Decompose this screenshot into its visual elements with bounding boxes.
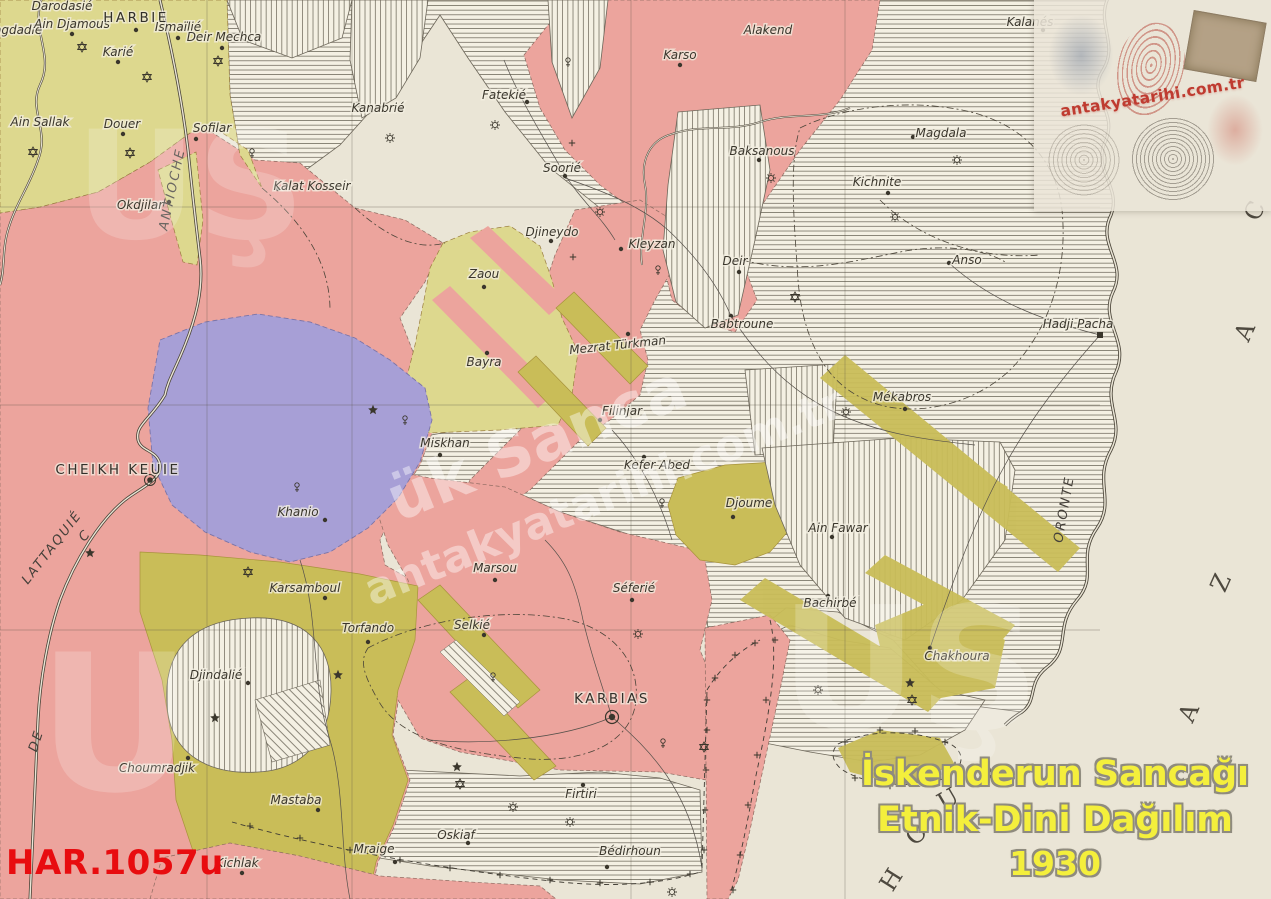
place-label: Kanabrié	[351, 101, 404, 115]
catalog-code: HAR.1057u	[6, 843, 224, 883]
place-label: KARBIAS	[574, 691, 650, 707]
place-label: Magdala	[916, 126, 967, 140]
place-label: Darodasié	[32, 0, 93, 13]
place-label: Bédirhoun	[599, 844, 661, 858]
place-label: Djineydo	[526, 225, 579, 239]
place-label: Babtroune	[711, 317, 774, 331]
place-label: Kleyzan	[629, 237, 676, 251]
map-scan: Darodasié Bagdadié Ain Djamous HARBIE Is…	[0, 0, 1271, 899]
place-label: Firtiri	[565, 787, 597, 801]
place-label: Anso	[951, 253, 981, 267]
handprint-icon	[1048, 14, 1114, 96]
place-label: Fatekié	[482, 88, 526, 102]
watermark-letters: UŞ	[780, 571, 1040, 769]
place-label: Hadji Pacha	[1043, 317, 1114, 331]
footprint-icon	[1036, 111, 1131, 208]
map-title: İskenderun Sancağı Etnik-Dini Dağılım 19…	[840, 752, 1270, 886]
place-label: Karsamboul	[270, 581, 342, 595]
place-label: Ain Djamous	[33, 17, 110, 31]
place-label: Mastaba	[271, 793, 322, 807]
map-title-line1: İskenderun Sancağı	[840, 752, 1270, 798]
place-label: Selkié	[454, 618, 490, 632]
place-label: Zaou	[468, 267, 500, 281]
place-label: Alakend	[743, 23, 793, 37]
place-label: Deir	[723, 254, 749, 268]
place-label: Djoume	[726, 496, 773, 510]
map-title-year: 1930	[840, 843, 1270, 886]
place-label: Séferié	[613, 581, 655, 595]
place-label: Bayra	[467, 355, 502, 369]
place-label: CHEIKH KEUIE	[55, 462, 180, 478]
site-logo-watermark: antakyatarihi.com.tr	[1034, 0, 1271, 211]
place-label: Soorié	[543, 161, 581, 175]
place-label: Mraige	[354, 842, 395, 856]
place-label: Deir Mechca	[187, 30, 262, 44]
place-label: Ain Fawar	[807, 521, 868, 535]
fingerprint-icon	[1130, 116, 1216, 202]
watermark-letters: UŞ	[75, 100, 305, 274]
place-label: Khanio	[277, 505, 318, 519]
place-label: Djindalié	[190, 668, 243, 682]
place-label: Kichnite	[853, 175, 901, 189]
place-label: Ain Sallak	[10, 115, 71, 129]
place-label: Torfando	[342, 621, 394, 635]
place-label: Oskiaf	[437, 828, 476, 842]
watermark-letter: U	[38, 614, 192, 835]
place-label: Karso	[663, 48, 696, 62]
place-label: Baksanous	[730, 144, 795, 158]
place-label: Mékabros	[873, 390, 931, 404]
map-title-line2: Etnik-Dini Dağılım	[840, 798, 1270, 844]
fingerprint-icon	[1207, 94, 1263, 166]
place-label: Karié	[103, 45, 133, 59]
